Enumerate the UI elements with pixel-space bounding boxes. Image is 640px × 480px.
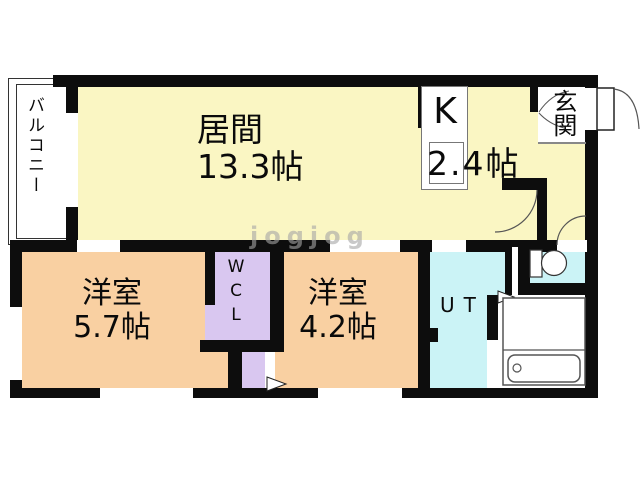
entrance-label: 玄関: [549, 89, 576, 145]
wall-hall-vertical: [537, 190, 547, 240]
wall-wcl-bottom: [200, 340, 278, 352]
bedroom-4-2-label: 洋室 4.2帖: [272, 277, 404, 344]
wall-toilet-left: [518, 247, 530, 283]
wall-entrance-stub: [530, 85, 538, 112]
doorway-wcl-passage: [265, 352, 275, 388]
floor-plan: バルコニー 居間 13.3帖 K 2.4帖 玄関 洋室 5.7帖 WCL 洋室 …: [0, 0, 640, 480]
doorway-toilet: [557, 240, 587, 252]
living-room-name: 居間: [197, 112, 303, 149]
bathroom-floor: [498, 295, 586, 388]
window-balcony-door: [66, 113, 78, 207]
doorway-bedroom-5-7: [77, 240, 120, 252]
doorway-front-door: [585, 88, 598, 130]
window-bedroom-5-7-bottom: [100, 388, 193, 398]
wall-wcl-left: [205, 250, 215, 305]
walk-in-closet-passage-floor: [242, 352, 265, 388]
wall-bedroom-5-7-right: [228, 352, 242, 388]
watermark: jogjog: [250, 222, 370, 250]
kitchen-size: 2.4帖: [427, 146, 520, 183]
bedroom-5-7-size: 5.7帖: [52, 311, 172, 345]
kitchen-label: K: [420, 92, 470, 132]
window-bedroom-5-7-left: [10, 307, 22, 380]
balcony-label: バルコニー: [24, 96, 43, 246]
window-bedroom-4-2-bottom: [318, 388, 402, 398]
wcl-label: WCL: [226, 257, 245, 339]
wall-utility-right: [505, 247, 512, 295]
wall-toilet-bottom: [518, 283, 598, 295]
wall-utility-nub: [430, 328, 438, 342]
bedroom-4-2-name: 洋室: [272, 277, 404, 311]
wall-top: [53, 75, 598, 87]
wall-bottom: [10, 388, 598, 398]
doorway-toilet-utility-sliver: [512, 247, 518, 283]
living-room-size: 13.3帖: [197, 149, 303, 186]
bedroom-4-2-size: 4.2帖: [272, 311, 404, 345]
wall-utility-left: [418, 252, 430, 388]
doorway-utility: [432, 240, 466, 252]
wall-bath-left: [487, 295, 498, 340]
front-door: [597, 88, 639, 130]
living-room-label: 居間 13.3帖: [197, 112, 303, 186]
bedroom-5-7-label: 洋室 5.7帖: [52, 277, 172, 344]
bedroom-5-7-name: 洋室: [52, 277, 172, 311]
doorway-bathroom: [487, 340, 498, 388]
utility-label: UT: [440, 294, 485, 316]
